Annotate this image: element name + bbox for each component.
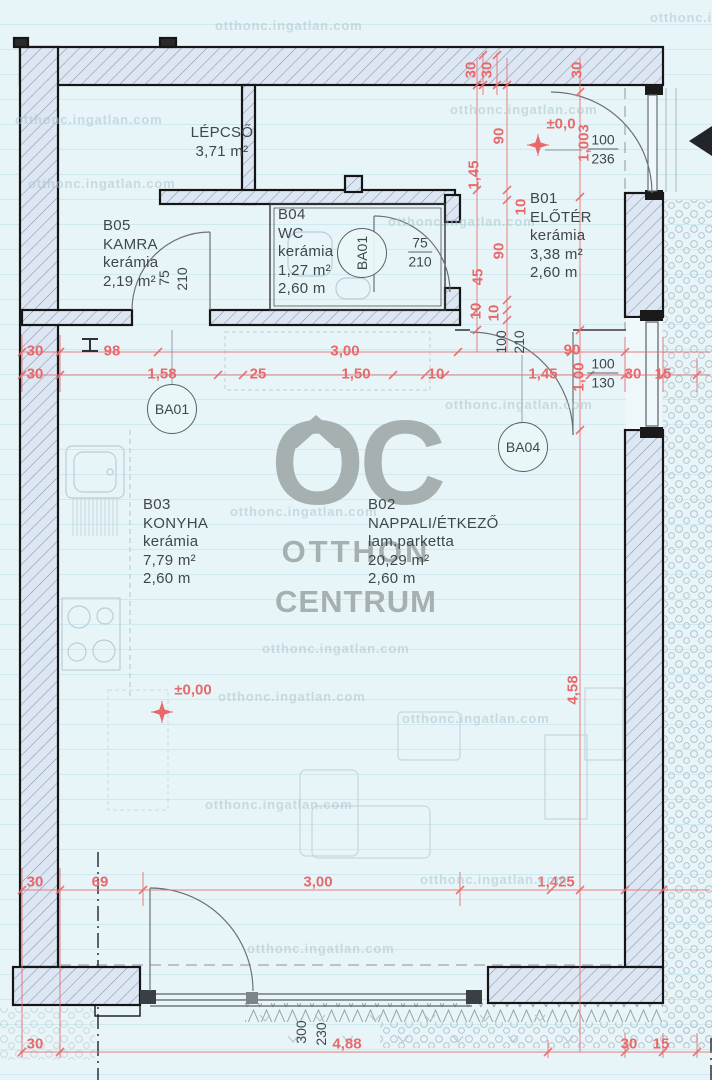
dim-label: 1,45 [528,367,557,382]
watermark: otthonc.ingatlan.com [15,112,162,127]
door-width: 100 [587,132,618,150]
door-size-label: 100130 [587,356,618,391]
door-tag: BA01 [147,384,197,434]
room-label-line: B02 [368,496,499,515]
room-label: B04WCkerámia1,27 m²2,60 m [278,206,333,299]
dim-label: 98 [104,344,121,359]
watermark: otthonc.ingatlan.com [230,504,377,519]
dim-label: 3,00 [303,875,332,890]
dim-label: 4,58 [566,675,581,704]
door-tag: BA01 [337,228,387,278]
room-label: B01ELŐTÉRkerámia3,38 m²2,60 m [530,190,592,283]
dim-label: 30 [27,875,44,890]
room-label-line: 2,60 m [278,280,333,299]
room-label-line: 3,38 m² [530,246,592,265]
dim-label: 75 [157,270,171,286]
watermark: otthonc.ingatlan.com [445,397,592,412]
dim-label: 45 [471,269,486,286]
dim-label: 300 [294,1020,308,1043]
dim-label: 30 [27,1037,44,1052]
room-label-line: KONYHA [143,515,208,534]
room-label-line: kerámia [278,243,333,262]
dim-label: 30 [621,1037,638,1052]
door-size-label: 100236 [587,132,618,167]
labels-layer: 3030301,454510901090101,00330983,0090301… [0,0,712,1080]
room-label-line: NAPPALI/ÉTKEZŐ [368,515,499,534]
room-label-line: kerámia [530,227,592,246]
dim-label: 4,88 [332,1037,361,1052]
door-size-label: 75210 [408,235,432,270]
level-label: ±0,0 [546,117,575,132]
watermark: otthonc.ingatlan.com [28,176,175,191]
room-label-line: 20,29 m² [368,552,499,571]
dim-label: 3,00 [330,344,359,359]
watermark: otthonc.ingatlan.com [262,641,409,656]
dim-label: 15 [653,1037,670,1052]
room-label-line: 2,19 m² [103,273,158,292]
dim-label: 25 [250,367,267,382]
dim-label: 90 [492,128,507,145]
dim-label: 1,50 [341,367,370,382]
room-label-line: 2,60 m [143,570,208,589]
watermark: otthonc.ingatlan.com [402,711,549,726]
room-label-line: B01 [530,190,592,209]
dim-label: 69 [92,875,109,890]
room-label-line: KAMRA [103,236,158,255]
watermark: otthonc.ingatlan.com [215,18,362,33]
dim-label: 210 [512,330,526,353]
room-label-line: B03 [143,496,208,515]
dim-label: 1,58 [147,367,176,382]
room-label-line: B05 [103,217,158,236]
dim-label: 100 [494,330,508,353]
room-label-line: B04 [278,206,333,225]
room-label-line: 2,60 m [530,264,592,283]
room-label-line: 1,27 m² [278,262,333,281]
dim-label: 1,45 [467,160,482,189]
dim-label: 30 [27,367,44,382]
dim-label: 15 [655,367,672,382]
watermark: otthonc.ingatlan.com [650,10,712,25]
door-height: 236 [587,150,618,167]
dim-label: 30 [625,367,642,382]
room-label: LÉPCSŐ3,71 m² [191,124,254,161]
room-label-line: 2,60 m [368,570,499,589]
dim-label: 210 [175,267,189,290]
door-height: 210 [408,253,432,270]
door-height: 130 [587,374,618,391]
level-label: ±0,00 [174,683,211,698]
room-label-line: 7,79 m² [143,552,208,571]
watermark: otthonc.ingatlan.com [450,102,597,117]
watermark: otthonc.ingatlan.com [205,797,352,812]
watermark: otthonc.ingatlan.com [388,214,535,229]
dim-label: 90 [564,343,581,358]
room-label-line: kerámia [143,533,208,552]
dim-label: 30 [480,62,495,79]
dim-label: 10 [487,305,502,322]
watermark: otthonc.ingatlan.com [218,689,365,704]
watermark: otthonc.ingatlan.com [247,941,394,956]
door-width: 75 [408,235,432,253]
room-label-line: lam.parketta [368,533,499,552]
room-label-line: kerámia [103,254,158,273]
room-label-line: ELŐTÉR [530,209,592,228]
room-label: B03KONYHAkerámia7,79 m²2,60 m [143,496,208,589]
dim-label: 1,00 [572,362,587,391]
dim-label: 30 [464,62,479,79]
room-label-line: WC [278,225,333,244]
dim-label: 10 [428,367,445,382]
watermark: otthonc.ingatlan.com [420,872,567,887]
door-width: 100 [587,356,618,374]
dim-label: 30 [27,344,44,359]
room-label: B05KAMRAkerámia2,19 m² [103,217,158,291]
dim-label: 30 [570,62,585,79]
dim-label: 230 [314,1022,328,1045]
room-label-line: 3,71 m² [191,143,254,162]
room-label-line: LÉPCSŐ [191,124,254,143]
dim-label: 10 [469,303,484,320]
room-label: B02NAPPALI/ÉTKEZŐlam.parketta20,29 m²2,6… [368,496,499,589]
floor-plan: OC OTTHON CENTRUM 3030301,45451090109010… [0,0,712,1080]
door-tag: BA04 [498,422,548,472]
dim-label: 10 [514,199,529,216]
dim-label: 90 [492,243,507,260]
